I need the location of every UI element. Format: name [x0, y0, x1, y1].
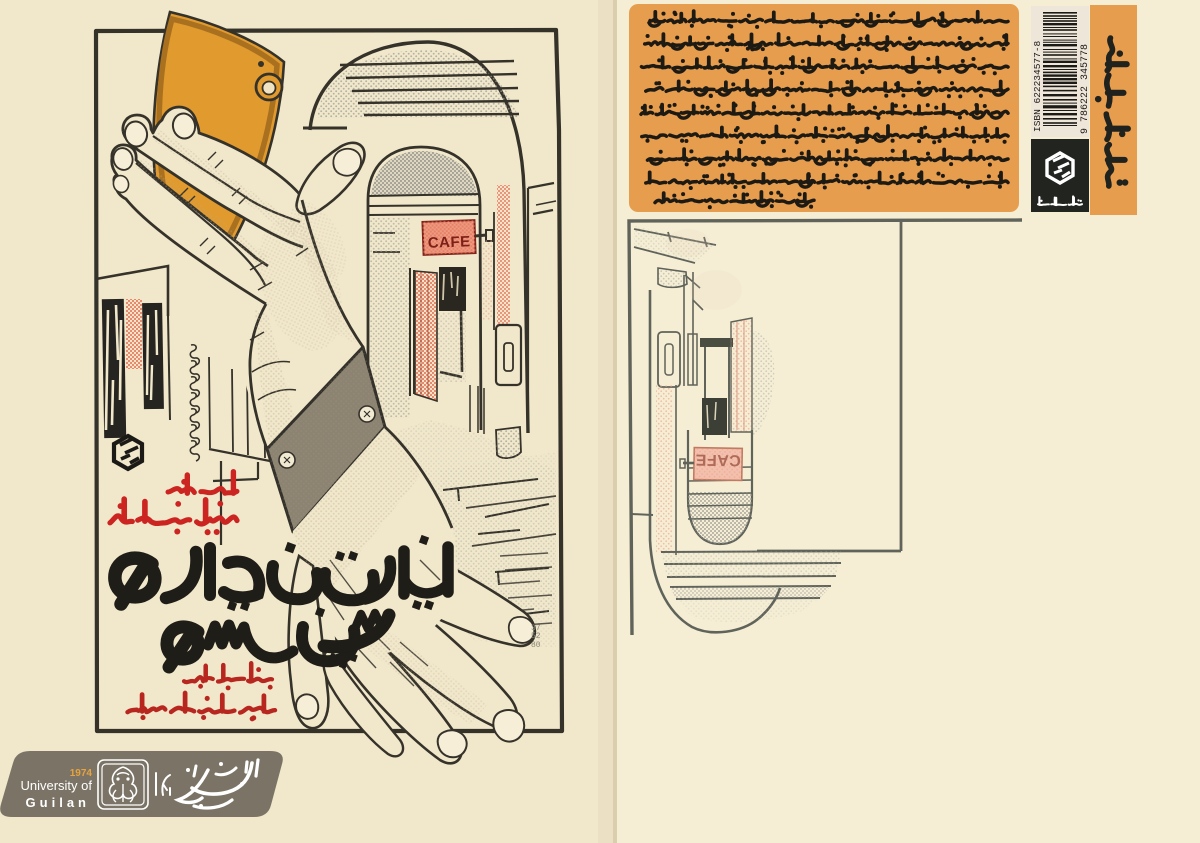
svg-text:ISBN 622234577-8: ISBN 622234577-8 [1032, 40, 1043, 132]
svg-text:52: 52 [531, 632, 541, 641]
svg-text:CAFE: CAFE [695, 451, 741, 469]
svg-text:CAFE: CAFE [427, 233, 470, 251]
svg-text:Guilan: Guilan [26, 795, 90, 810]
svg-text:80: 80 [531, 641, 541, 650]
svg-text:University of: University of [20, 778, 92, 793]
svg-text:9 786222 345778: 9 786222 345778 [1080, 44, 1091, 134]
